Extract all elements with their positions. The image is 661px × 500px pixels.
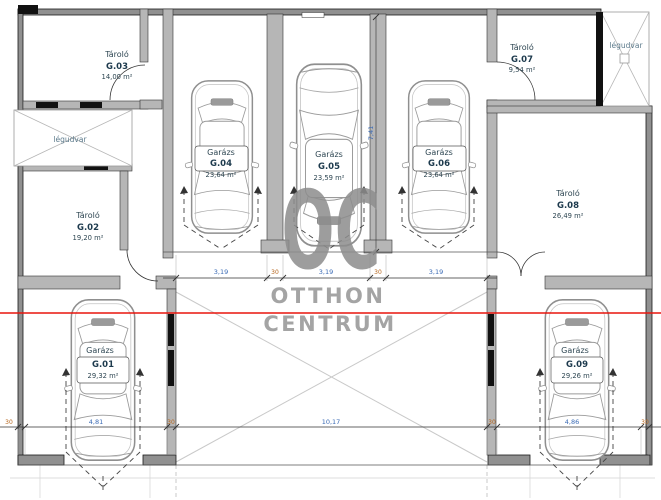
room-id: G.08 <box>557 201 579 211</box>
room-type: Garázs <box>315 150 343 159</box>
room-area: 23,64 m² <box>424 171 455 179</box>
watermark-logo: OC <box>281 168 380 294</box>
room-id: G.05 <box>318 162 340 172</box>
room-type: Garázs <box>425 148 453 157</box>
dim-bottom-0: 30 <box>5 419 13 426</box>
room-type: Tároló <box>75 210 100 220</box>
dim-depth: 7,41 <box>367 126 375 140</box>
room-label-g08: Tároló G.08 26,49 m² <box>553 188 584 220</box>
top-wall-notch <box>302 13 324 18</box>
room-area: 14,00 m² <box>102 73 133 81</box>
lightwell-right-label: légudvar <box>609 41 643 50</box>
room-label-g02: Tároló G.02 19,20 m² <box>73 210 104 242</box>
door-arc-g08-right <box>521 252 545 276</box>
top-left-wall-block <box>18 5 38 14</box>
room-type: Tároló <box>555 188 580 198</box>
lightwell-left-label: légudvar <box>53 135 87 144</box>
room-area: 29,32 m² <box>88 372 119 380</box>
room-area: 23,59 m² <box>314 174 345 182</box>
room-id: G.04 <box>210 159 232 169</box>
floor-plan: légudvar légudvar <box>0 0 661 500</box>
watermark: OC OTTHON CENTRUM <box>263 168 396 336</box>
room-type: Garázs <box>561 346 589 355</box>
dim-drive-width: 10,17 <box>322 418 341 426</box>
room-area: 26,49 m² <box>553 212 584 220</box>
room-type: Tároló <box>509 42 534 52</box>
watermark-line1: OTTHON <box>271 284 386 308</box>
site-lines <box>10 465 655 498</box>
room-type: Garázs <box>86 346 114 355</box>
lightwell-left: légudvar <box>14 110 132 166</box>
dim-g04-width: 3,19 <box>214 268 228 276</box>
dim-bottom-2: 30 <box>167 419 175 426</box>
room-label-g07: Tároló G.07 9,54 m² <box>509 42 536 74</box>
room-area: 29,26 m² <box>562 372 593 380</box>
lightwell-right-wall <box>596 12 603 106</box>
room-id: G.06 <box>428 159 450 169</box>
room-id: G.09 <box>566 360 588 370</box>
room-id: G.07 <box>511 55 533 65</box>
dim-g06-width: 3,19 <box>429 268 443 276</box>
dim-wall-45: 30 <box>271 269 279 276</box>
door-arc-g02 <box>127 250 158 281</box>
room-type: Tároló <box>104 49 129 59</box>
room-type: Garázs <box>207 148 235 157</box>
lightwell-right: légudvar <box>596 12 649 106</box>
room-label-g03: Tároló G.03 14,00 m² <box>102 49 133 81</box>
watermark-line2: CENTRUM <box>263 312 396 336</box>
room-id: G.02 <box>77 223 99 233</box>
room-id: G.01 <box>92 360 114 370</box>
floor-plan-drawing: légudvar légudvar <box>0 0 661 500</box>
room-area: 23,64 m² <box>206 171 237 179</box>
room-id: G.03 <box>106 62 128 72</box>
dim-g09-width: 4,86 <box>565 418 579 426</box>
door-arc-g08-left <box>497 252 521 276</box>
room-area: 19,20 m² <box>73 234 104 242</box>
room-area: 9,54 m² <box>509 66 536 74</box>
dim-g01-width: 4,81 <box>89 418 103 426</box>
dim-bottom-4: 30 <box>488 419 496 426</box>
dim-bottom-6: 30 <box>641 419 649 426</box>
